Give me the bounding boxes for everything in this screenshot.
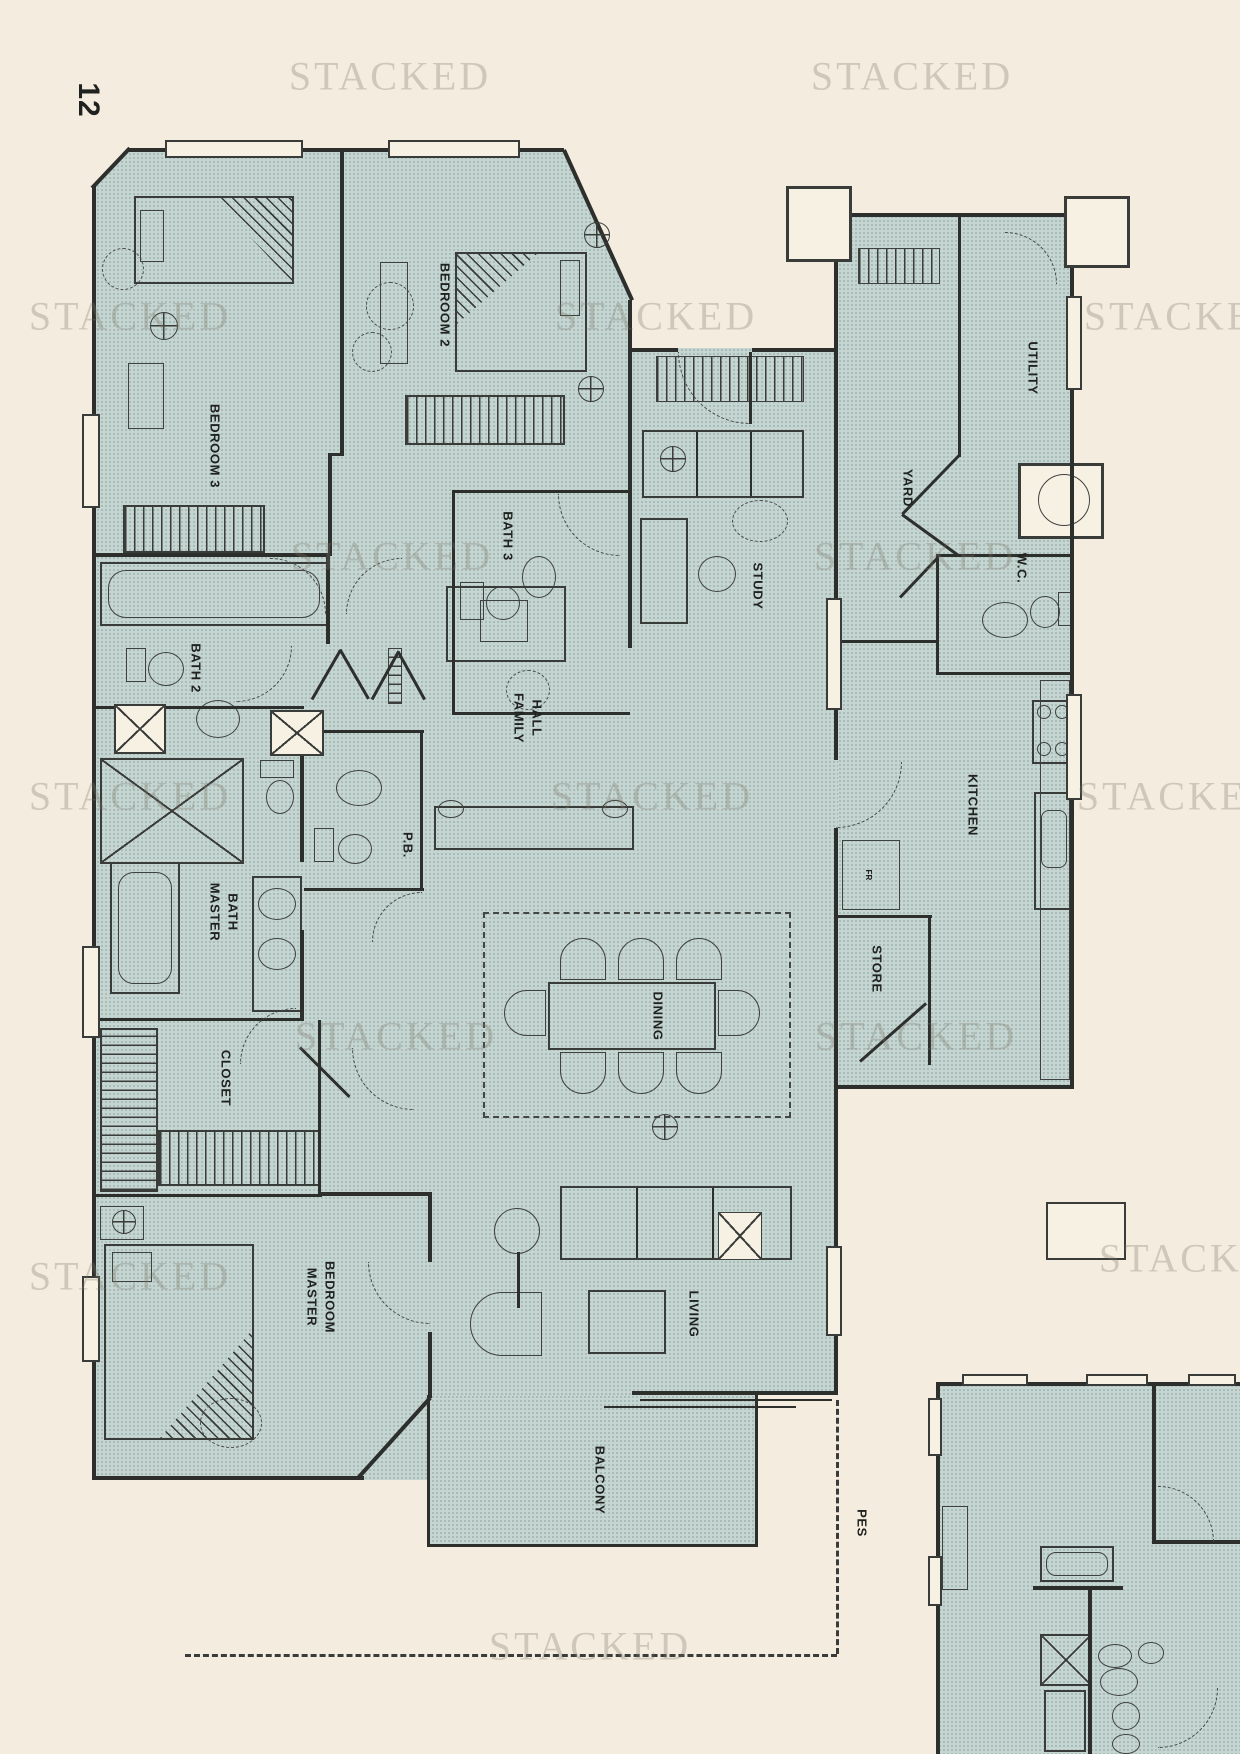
ceiling-light-icon <box>578 376 604 402</box>
inset-wall <box>1088 1590 1092 1754</box>
floor-lamp <box>517 1252 520 1308</box>
room-label-bath2: BATH 2 <box>190 643 203 693</box>
inset-window <box>928 1398 942 1456</box>
scanned-floorplan-page: { "page": { "number": "12" }, "watermark… <box>0 0 1240 1754</box>
hob-burner <box>1037 742 1051 756</box>
washing-machine-drum <box>1038 474 1090 526</box>
watermark: STACKED <box>291 533 493 580</box>
dining-rug <box>483 912 791 1118</box>
inset-window <box>1188 1374 1236 1386</box>
wall <box>752 348 838 352</box>
wall <box>632 348 678 352</box>
sofa-armrest <box>438 800 464 818</box>
sink-basin <box>982 602 1028 638</box>
inset-toilet-bowl <box>1112 1702 1140 1730</box>
toilet-cistern <box>126 648 146 682</box>
label-fridge: FR <box>864 869 872 880</box>
wall <box>452 490 630 493</box>
window <box>826 598 842 710</box>
bay-window-box <box>786 186 852 262</box>
armchair <box>470 1292 542 1356</box>
inset-window <box>1086 1374 1148 1386</box>
sofa-divider <box>696 432 698 496</box>
inset-bathtub <box>1044 1690 1086 1752</box>
wall <box>838 640 938 643</box>
room-label-study: STUDY <box>752 562 765 609</box>
ceiling-light-icon <box>652 1114 678 1140</box>
wardrobe <box>158 1130 320 1186</box>
wall <box>92 1476 364 1480</box>
window <box>1066 296 1082 390</box>
watermark: STACKED <box>289 53 491 100</box>
wall <box>838 213 1074 217</box>
room-label-store: STORE <box>871 945 884 993</box>
wall <box>838 1085 1070 1089</box>
wall <box>300 930 304 1020</box>
sofa-divider <box>636 1188 638 1258</box>
watermark: STACKED <box>1077 773 1240 820</box>
page-number: 12 <box>73 82 103 117</box>
inset-shower-stall <box>1040 1634 1092 1686</box>
inset-toilet-bowl <box>1112 1734 1140 1754</box>
label-pes: PES <box>856 1509 869 1537</box>
wall <box>428 1192 432 1262</box>
yard-cabinet <box>858 248 940 284</box>
wall <box>304 888 424 891</box>
inset-wall <box>1152 1386 1156 1544</box>
ceiling-light-icon <box>112 1210 136 1234</box>
window <box>82 946 100 1038</box>
watermark: STACKED <box>1099 1235 1240 1282</box>
sink-basin <box>258 938 296 970</box>
watermark: STACKED <box>295 1013 497 1060</box>
room-label-kitchen: KITCHEN <box>967 774 980 836</box>
inset-cabinet <box>942 1506 968 1590</box>
room-label-master-bedroom: BEDROOM <box>324 1261 337 1333</box>
balcony-wall <box>755 1395 758 1547</box>
wall <box>96 1194 322 1197</box>
room-label-master-bath: BATH <box>227 893 240 931</box>
wall <box>428 1332 432 1398</box>
room-label-master-bath: MASTER <box>209 883 222 942</box>
balcony-wall <box>427 1544 758 1547</box>
inset-sink-basin <box>1138 1642 1164 1664</box>
wall <box>340 150 344 456</box>
room-label-pb: P.B. <box>402 832 415 858</box>
wall <box>838 915 932 918</box>
watermark: STACKED <box>811 53 1013 100</box>
sliding-door-track <box>604 1406 796 1408</box>
sofa-divider <box>712 1188 714 1258</box>
ceiling-light-icon <box>584 222 610 248</box>
desk-chair <box>698 556 736 592</box>
watermark: STACKED <box>551 773 753 820</box>
wall <box>420 730 423 890</box>
wall <box>452 490 455 714</box>
watermark: STACKED <box>489 1623 691 1670</box>
watermark: STACKED <box>815 1013 1017 1060</box>
ceiling-light-icon <box>660 446 686 472</box>
inset-window <box>962 1374 1028 1386</box>
room-label-yard: YARD <box>902 469 915 507</box>
desk <box>640 518 688 624</box>
ac-ledge-icon <box>718 1212 762 1260</box>
wall <box>936 672 1074 675</box>
room-label-bath3: BATH 3 <box>502 511 515 561</box>
ac-ledge-icon <box>270 710 324 756</box>
toilet-bowl <box>266 780 294 814</box>
room-label-family-hall: FAMILY <box>513 693 526 743</box>
hob-burner <box>1037 705 1051 719</box>
watermark: STACKED <box>29 1253 231 1300</box>
toilet-cistern <box>260 760 294 778</box>
window <box>388 140 520 158</box>
room-label-closet: CLOSET <box>220 1050 233 1106</box>
sofa-divider <box>750 432 752 496</box>
wall <box>318 1192 432 1196</box>
watermark: STACKED <box>555 293 757 340</box>
kitchen-sink-bowl <box>1041 810 1067 868</box>
balcony-wall <box>427 1395 430 1547</box>
ac-ledge-icon <box>114 704 166 754</box>
room-label-master-bedroom: MASTER <box>306 1268 319 1327</box>
wall <box>958 217 961 457</box>
inset-sink-basin <box>1098 1644 1132 1668</box>
toilet-bowl <box>338 834 372 864</box>
wardrobe <box>405 395 565 445</box>
coffee-table <box>588 1290 666 1354</box>
window <box>826 1246 842 1336</box>
toilet-bowl <box>148 652 184 686</box>
stool-dashed <box>352 332 392 372</box>
room-label-family-hall: HALL <box>531 699 544 736</box>
room-label-bedroom3: BEDROOM 3 <box>209 404 222 488</box>
watermark: STACKED <box>29 773 231 820</box>
side-table <box>494 1208 540 1254</box>
inset-window <box>928 1556 942 1606</box>
bay-window-box <box>1064 196 1130 268</box>
watermark: STACKED <box>814 533 1016 580</box>
inset-wall <box>1033 1586 1123 1590</box>
stool-dashed <box>366 282 414 330</box>
wall <box>628 300 632 648</box>
dresser <box>128 363 164 429</box>
room-label-wc: W.C. <box>1016 553 1029 584</box>
wall-balcony-door <box>632 1391 838 1395</box>
monitor <box>480 600 528 642</box>
room-label-dining: DINING <box>652 991 665 1040</box>
bathtub-basin <box>118 872 172 984</box>
sink-basin <box>336 770 382 806</box>
window <box>165 140 303 158</box>
watermark: STACKED <box>1084 293 1240 340</box>
window <box>82 414 100 508</box>
room-label-living: LIVING <box>688 1291 701 1338</box>
inset-toilet-bowl <box>1100 1668 1138 1696</box>
sink-basin <box>258 888 296 920</box>
room-label-utility: UTILITY <box>1027 341 1040 394</box>
table-dashed <box>732 500 788 542</box>
inset-bathtub-basin <box>1046 1552 1108 1576</box>
toilet-bowl <box>1030 596 1060 628</box>
room-label-balcony: BALCONY <box>594 1446 607 1514</box>
sliding-door-track <box>640 1399 832 1401</box>
stool-dashed <box>102 248 144 290</box>
pillow <box>140 210 164 262</box>
ottoman-dashed <box>200 1398 262 1448</box>
toilet-cistern <box>314 828 334 862</box>
room-label-bedroom2: BEDROOM 2 <box>439 263 452 347</box>
watermark: STACKED <box>29 293 231 340</box>
wardrobe <box>100 1028 158 1192</box>
pes-boundary-dashed <box>836 1400 839 1654</box>
wardrobe <box>123 505 265 553</box>
